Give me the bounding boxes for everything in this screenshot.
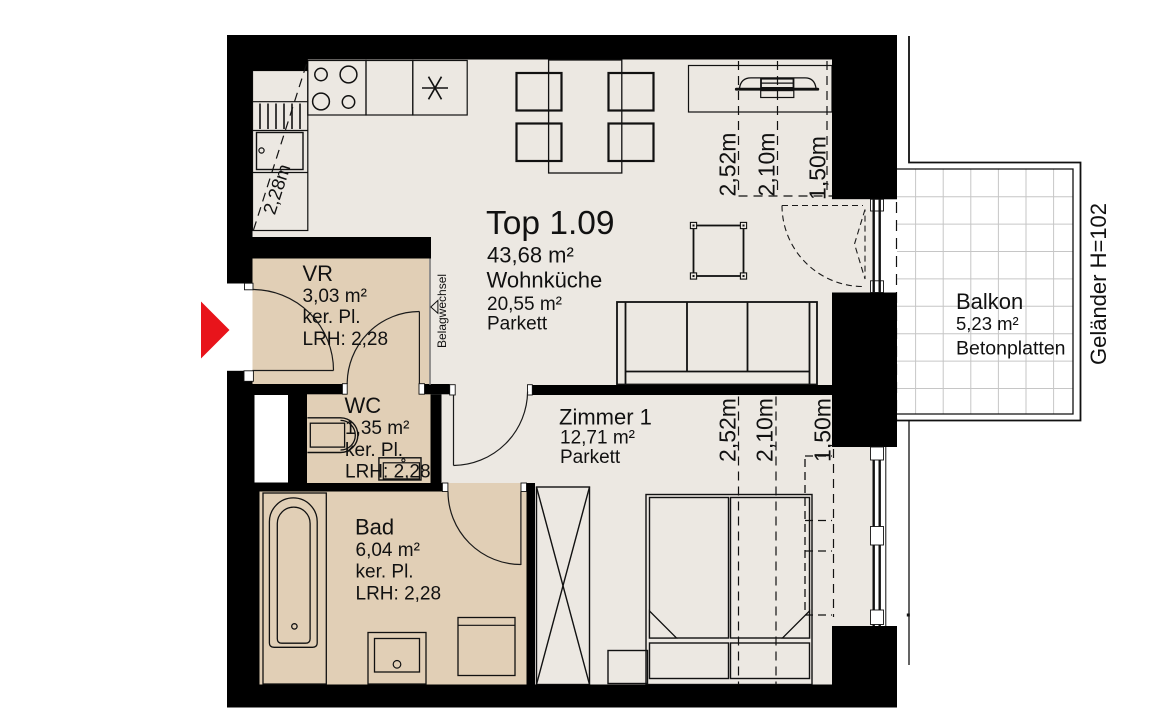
- svg-text:43,68 m²: 43,68 m²: [487, 243, 574, 268]
- svg-text:LRH: 2,28: LRH: 2,28: [345, 462, 431, 483]
- svg-text:Parkett: Parkett: [560, 447, 621, 468]
- svg-text:20,55 m²: 20,55 m²: [487, 294, 562, 315]
- svg-text:LRH: 2,28: LRH: 2,28: [303, 329, 389, 350]
- svg-text:ker. Pl.: ker. Pl.: [345, 440, 403, 461]
- svg-text:2,52m: 2,52m: [715, 133, 741, 197]
- svg-text:Zimmer 1: Zimmer 1: [559, 405, 652, 430]
- svg-text:ker. Pl.: ker. Pl.: [356, 562, 414, 583]
- svg-text:2,52m: 2,52m: [715, 398, 741, 462]
- svg-text:1,35 m²: 1,35 m²: [345, 418, 409, 439]
- svg-text:1,50m: 1,50m: [805, 136, 831, 200]
- svg-text:Top 1.09: Top 1.09: [486, 205, 615, 242]
- svg-text:12,71 m²: 12,71 m²: [560, 428, 635, 449]
- svg-text:6,04 m²: 6,04 m²: [356, 540, 420, 561]
- svg-text:5,23 m²: 5,23 m²: [956, 313, 1019, 334]
- svg-text:Betonplatten: Betonplatten: [956, 338, 1066, 360]
- svg-text:Parkett: Parkett: [487, 314, 548, 335]
- svg-text:LRH: 2,28: LRH: 2,28: [356, 584, 442, 605]
- svg-text:VR: VR: [303, 261, 334, 286]
- svg-text:ker. Pl.: ker. Pl.: [303, 307, 361, 328]
- svg-text:2,10m: 2,10m: [752, 398, 778, 462]
- svg-text:WC: WC: [345, 393, 382, 418]
- svg-text:Bad: Bad: [355, 515, 394, 540]
- svg-text:Balkon: Balkon: [956, 289, 1023, 314]
- svg-text:Wohnküche: Wohnküche: [487, 268, 603, 293]
- svg-text:2,10m: 2,10m: [754, 133, 780, 197]
- svg-text:1,50m: 1,50m: [810, 398, 836, 462]
- svg-text:Geländer H=102: Geländer H=102: [1086, 203, 1111, 365]
- svg-text:Belagwechsel: Belagwechsel: [435, 274, 449, 348]
- svg-text:3,03 m²: 3,03 m²: [303, 286, 367, 307]
